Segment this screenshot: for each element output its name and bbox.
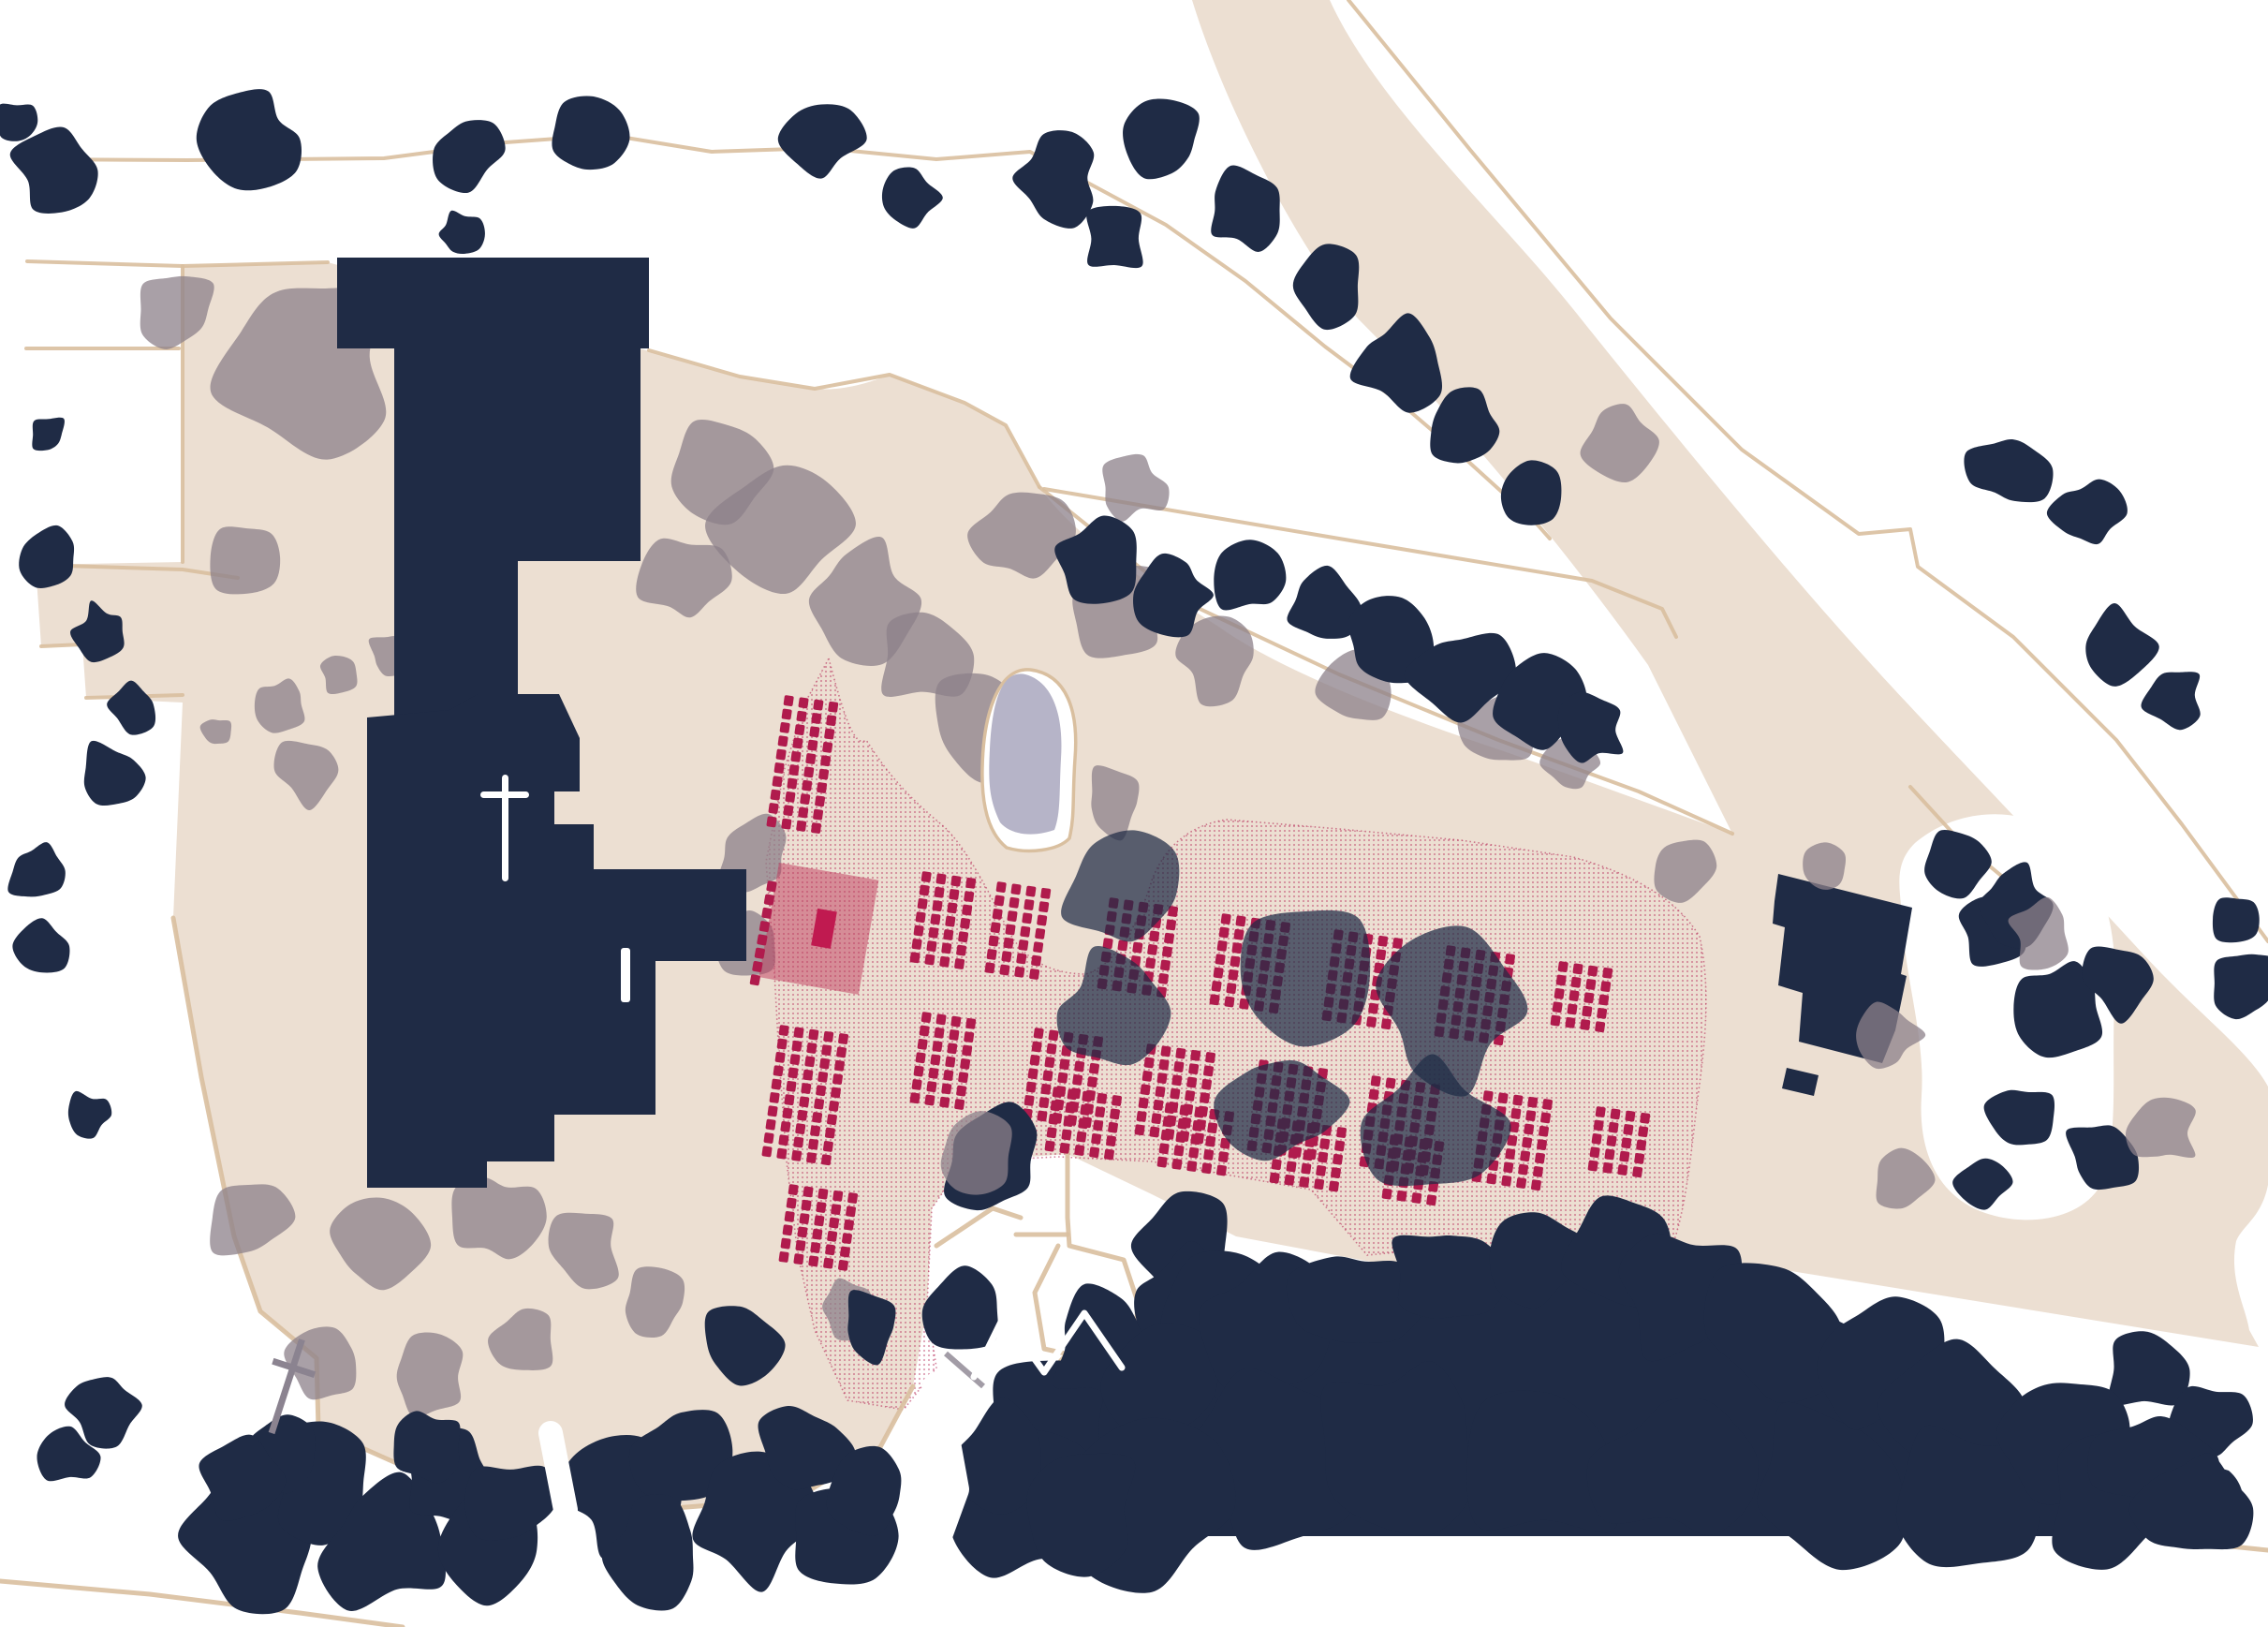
chair (924, 1094, 935, 1105)
chair (934, 1028, 944, 1039)
chair (798, 806, 808, 818)
chair (791, 1041, 802, 1052)
chair (1377, 936, 1388, 947)
chair (1606, 1135, 1616, 1146)
chair (776, 1038, 787, 1049)
chair (819, 1058, 830, 1069)
tree-blob (2047, 480, 2128, 545)
chair (1020, 926, 1030, 938)
chair (1209, 994, 1219, 1005)
chair (1024, 1095, 1034, 1106)
chair (1031, 1041, 1041, 1052)
chair (801, 1083, 811, 1094)
chair (781, 818, 791, 829)
chair (1213, 967, 1223, 978)
chair (1565, 1017, 1575, 1028)
chair (795, 1123, 805, 1134)
chair (779, 722, 789, 733)
chair (1205, 1135, 1215, 1146)
chair (810, 1242, 820, 1253)
chair (1535, 1152, 1545, 1163)
tree-blob (19, 525, 74, 588)
chair (790, 751, 801, 762)
chair (1589, 1146, 1599, 1158)
chair (847, 1192, 858, 1204)
chair (826, 715, 836, 726)
chair (1009, 897, 1019, 909)
chair (823, 1257, 833, 1268)
chair (909, 1092, 920, 1103)
tree-blob (439, 211, 485, 254)
tree-blob (7, 842, 65, 896)
chair (1392, 938, 1403, 949)
chair (1522, 1137, 1532, 1148)
chair (1132, 942, 1142, 954)
chair (1582, 1006, 1592, 1017)
chair (1005, 924, 1015, 935)
chair (1231, 942, 1242, 954)
chair (1179, 1104, 1189, 1116)
chair (787, 777, 797, 789)
chair (1303, 1149, 1313, 1161)
chair (803, 1186, 813, 1197)
chair (1186, 1076, 1197, 1087)
chair (794, 724, 804, 735)
chair (1201, 1079, 1212, 1090)
chair (1156, 1156, 1167, 1167)
chair (844, 1220, 854, 1231)
chair (803, 766, 814, 777)
chair (1368, 1002, 1378, 1013)
chair (1158, 1059, 1169, 1071)
chair (1160, 1130, 1171, 1141)
chair (958, 931, 968, 942)
tree-blob (2213, 897, 2260, 942)
chair (793, 1136, 803, 1147)
chair (1025, 885, 1036, 896)
chair (768, 803, 778, 814)
chair (791, 1150, 802, 1161)
chair (1621, 1137, 1631, 1148)
chair (932, 1041, 942, 1052)
tree-blob (84, 741, 146, 806)
chair (1155, 1086, 1165, 1097)
chair (1610, 1108, 1620, 1119)
chair (920, 1012, 931, 1023)
chair (1608, 1122, 1618, 1133)
chair (1593, 1119, 1603, 1131)
chair (1052, 1087, 1062, 1098)
chair (831, 1204, 841, 1215)
chair (1033, 941, 1043, 953)
chair (1072, 1074, 1082, 1086)
chair (1319, 1138, 1330, 1149)
chair (832, 1073, 843, 1085)
forest-blob (1026, 1454, 1135, 1577)
chair (1572, 963, 1583, 974)
chair (836, 1046, 847, 1058)
chair (915, 1052, 925, 1063)
chair (1516, 1177, 1526, 1189)
chair (1595, 1021, 1605, 1032)
chair (1512, 1094, 1523, 1105)
chair (1061, 1129, 1071, 1140)
chair (1370, 1075, 1380, 1087)
chair (1316, 1165, 1326, 1176)
chair (928, 927, 938, 939)
chair (813, 809, 823, 821)
chair (755, 947, 766, 959)
chair (808, 1255, 818, 1266)
chair (1625, 1110, 1635, 1121)
chair (1194, 1106, 1204, 1117)
chair (939, 956, 950, 968)
chair (1205, 1052, 1215, 1063)
chair (824, 728, 834, 739)
chair (1117, 939, 1127, 951)
chair (1093, 1119, 1103, 1131)
chair (1203, 1065, 1214, 1076)
chair (838, 1033, 848, 1044)
chair (800, 793, 810, 805)
chair (1299, 1176, 1309, 1188)
chair (752, 961, 763, 973)
chair (1185, 1090, 1195, 1102)
chair (765, 1119, 775, 1131)
chair (788, 1184, 798, 1195)
chair (1510, 1108, 1521, 1119)
chair (782, 1107, 792, 1118)
chair (950, 1015, 961, 1027)
chair (960, 918, 970, 929)
chair (810, 1125, 820, 1136)
chair (786, 1197, 796, 1208)
chair (990, 922, 1000, 933)
canopy-blob (1102, 454, 1169, 522)
chair (964, 1031, 974, 1043)
chair (1426, 1194, 1436, 1205)
chair (1585, 979, 1596, 990)
chair (1503, 1161, 1513, 1173)
chair (1334, 1140, 1345, 1151)
chair (1037, 914, 1047, 925)
chair (1162, 946, 1172, 957)
church-door-slot (621, 948, 630, 1002)
chair (778, 1134, 788, 1146)
chair (1080, 1104, 1090, 1116)
chair (1411, 1192, 1421, 1204)
chair (1153, 1100, 1163, 1111)
chair (1031, 954, 1041, 966)
chair (965, 878, 976, 889)
chair (935, 1013, 946, 1025)
chair (815, 795, 825, 806)
chair (1583, 992, 1594, 1003)
chair (823, 1141, 833, 1152)
chair (919, 1025, 929, 1036)
tree-blob (1123, 99, 1200, 180)
chair (1376, 949, 1386, 960)
chair (954, 958, 965, 969)
chair (1318, 1151, 1328, 1162)
chair (1010, 883, 1021, 895)
chair (770, 790, 780, 801)
chair (1007, 910, 1017, 922)
chair (1595, 1106, 1605, 1117)
chair (1110, 1108, 1120, 1119)
chair (766, 880, 777, 893)
chair (1108, 1122, 1118, 1133)
chair (1207, 1122, 1217, 1133)
tree-blob (12, 918, 69, 972)
chair (947, 1043, 957, 1054)
chair (1074, 1145, 1084, 1156)
chair (808, 1028, 818, 1040)
tree-blob (433, 120, 506, 193)
chair (1022, 912, 1032, 924)
chair (773, 762, 784, 774)
chair (788, 764, 799, 776)
chair (1638, 1126, 1648, 1137)
tree-blob (2214, 954, 2268, 1019)
chair (1587, 1160, 1598, 1171)
chair (943, 929, 953, 940)
chair (817, 1188, 828, 1199)
chair (1003, 938, 1013, 949)
chair (834, 1060, 845, 1072)
chair (801, 1200, 811, 1211)
forest-blob (393, 1411, 460, 1483)
chair (1164, 933, 1174, 944)
chair (950, 875, 961, 886)
tree-blob (1012, 130, 1094, 229)
tree-blob (2085, 603, 2158, 687)
canopy-blob (210, 526, 280, 594)
chair (1175, 1047, 1186, 1058)
trail-path (41, 644, 82, 646)
chair (1173, 1061, 1184, 1072)
chair (814, 1098, 824, 1109)
chair (808, 1139, 818, 1150)
chair (956, 1085, 966, 1096)
tree-blob (10, 126, 98, 214)
chair (943, 1070, 953, 1081)
chair (1331, 1167, 1341, 1178)
chair (1336, 1127, 1347, 1138)
chair (784, 1211, 794, 1222)
chair (1046, 1127, 1056, 1138)
chair (1186, 1161, 1197, 1172)
chair (1042, 1070, 1053, 1081)
chair (1203, 1149, 1214, 1161)
chair (809, 726, 819, 737)
chair (1018, 939, 1028, 951)
pond-water (989, 673, 1061, 834)
chair (806, 1043, 817, 1054)
chair (1228, 969, 1238, 981)
chair (917, 1039, 927, 1050)
chair (814, 1215, 824, 1226)
chair (1104, 1148, 1114, 1160)
chair (763, 1132, 773, 1144)
chair (775, 748, 786, 760)
chair (1048, 1114, 1058, 1125)
chair (1617, 1164, 1627, 1176)
chair (821, 1154, 832, 1165)
chair (1171, 1159, 1182, 1170)
chair (1040, 888, 1051, 899)
chair (761, 1146, 772, 1157)
chair (926, 1081, 936, 1092)
tree-blob (1214, 540, 1286, 610)
chair (917, 898, 927, 910)
chair (1385, 1077, 1395, 1088)
chair (780, 1121, 790, 1132)
chair (1233, 929, 1244, 940)
chair (1076, 1132, 1086, 1143)
chair (785, 791, 795, 803)
chair (984, 962, 994, 973)
chair (1112, 1095, 1122, 1106)
chair (783, 695, 793, 706)
tree-blob (32, 418, 65, 451)
chair (1218, 926, 1229, 938)
chair (1505, 1148, 1515, 1160)
chair (1082, 1090, 1092, 1102)
chair (797, 1110, 807, 1121)
chair (1065, 1102, 1075, 1114)
chair (1171, 1074, 1182, 1086)
chair (772, 776, 782, 787)
stage-group (758, 863, 878, 995)
chair (1505, 954, 1515, 965)
tree-blob (922, 1265, 998, 1349)
chair (789, 1054, 800, 1065)
chair (1190, 1050, 1200, 1061)
tree-blob (2142, 672, 2201, 730)
chair (1175, 1132, 1186, 1143)
chair (1027, 1068, 1038, 1079)
chair (796, 711, 806, 722)
chair (776, 1147, 787, 1159)
chair (1540, 1112, 1551, 1123)
chair (827, 1114, 837, 1125)
chair (811, 822, 821, 834)
chair (804, 1056, 815, 1067)
chair (816, 1085, 826, 1096)
chair (1286, 1161, 1296, 1172)
chair (1141, 1071, 1152, 1082)
chair (774, 1052, 785, 1063)
chair (831, 1087, 841, 1098)
chair (1215, 954, 1225, 965)
chair (1623, 1124, 1633, 1135)
chair (1619, 1151, 1629, 1162)
chair (1640, 1113, 1650, 1124)
chair (956, 944, 966, 955)
chair (1230, 955, 1240, 967)
chair (965, 1018, 976, 1029)
chair (1136, 1111, 1146, 1122)
chair (1143, 1057, 1154, 1068)
chair (1533, 1166, 1543, 1177)
chair (1501, 1176, 1511, 1187)
chair (1216, 940, 1227, 952)
chair (1166, 919, 1176, 930)
chair (817, 1072, 828, 1083)
chair (1587, 965, 1598, 976)
chair (1218, 1151, 1229, 1162)
chair (796, 821, 806, 832)
chair (766, 816, 776, 827)
chair (941, 1083, 951, 1094)
chair (1059, 1143, 1069, 1154)
chair (947, 902, 957, 913)
chair (1220, 913, 1230, 924)
chair (757, 934, 768, 946)
chair (829, 1101, 839, 1112)
chair (1024, 899, 1034, 910)
chair (1396, 1191, 1406, 1202)
chair (1381, 1188, 1392, 1199)
chair (1604, 1148, 1614, 1160)
chair (783, 805, 793, 816)
chair (1555, 974, 1566, 985)
chair (1580, 1019, 1590, 1030)
chair (1029, 1055, 1039, 1066)
chair (1001, 951, 1011, 962)
chair (1600, 981, 1611, 992)
chair (941, 942, 951, 954)
tree-blob (1293, 244, 1359, 330)
chair (793, 1027, 803, 1038)
chair (1486, 1173, 1496, 1184)
chair (1147, 944, 1157, 955)
chair (911, 1079, 921, 1090)
chair (749, 974, 760, 986)
tree-blob (882, 168, 943, 229)
chair (786, 1081, 796, 1092)
chair (988, 935, 998, 946)
chair (827, 1231, 837, 1242)
chair (1226, 983, 1236, 994)
tree-blob (1086, 206, 1142, 268)
chair (1038, 901, 1049, 912)
chair (1063, 1116, 1073, 1127)
chair (1537, 1139, 1547, 1150)
chair (945, 1057, 955, 1068)
chair (1597, 1008, 1607, 1019)
chair (759, 921, 771, 933)
chair (954, 1099, 965, 1110)
chair (767, 1105, 777, 1117)
chair (1151, 1113, 1161, 1124)
chair (920, 871, 931, 882)
chair (915, 911, 925, 923)
chair (1201, 1162, 1212, 1174)
chair (805, 753, 816, 764)
chair (761, 908, 773, 920)
chair (1048, 1029, 1058, 1041)
chair (771, 1078, 781, 1089)
chair (962, 904, 972, 915)
chair (1301, 1163, 1311, 1175)
chair (1632, 1166, 1642, 1177)
chair (1134, 1124, 1144, 1135)
chair (788, 1067, 798, 1078)
chair (928, 1068, 938, 1079)
chair (1162, 1116, 1172, 1127)
